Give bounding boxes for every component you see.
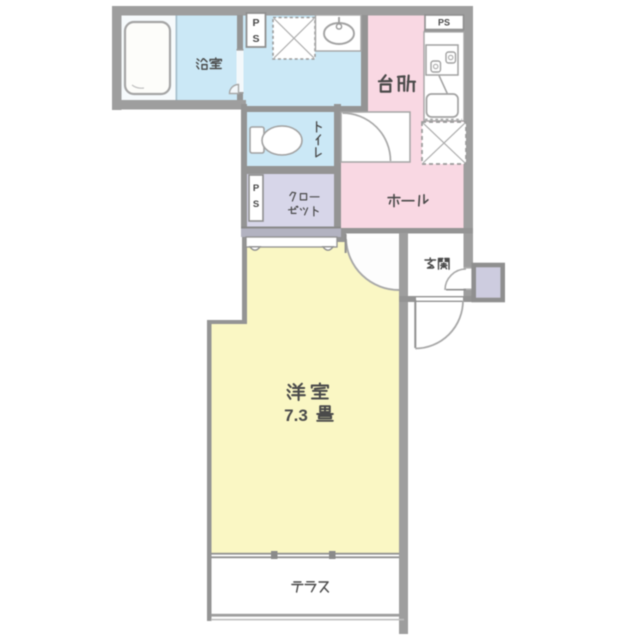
svg-text:S: S bbox=[252, 33, 259, 45]
svg-text:S: S bbox=[253, 199, 259, 210]
svg-text:P: P bbox=[253, 183, 260, 194]
svg-text:7.3: 7.3 bbox=[284, 406, 308, 425]
svg-text:P: P bbox=[252, 17, 259, 29]
svg-text:PS: PS bbox=[438, 18, 450, 28]
